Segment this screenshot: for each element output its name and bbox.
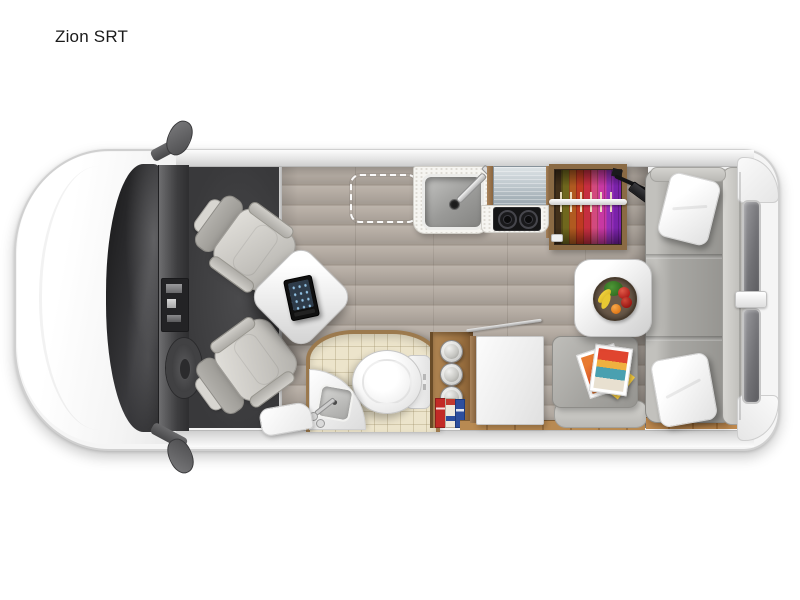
can-1 (440, 340, 463, 363)
refrigerator (493, 166, 548, 209)
steering-hub (179, 358, 191, 380)
storage-cabinet (476, 336, 544, 425)
rear-window-top (742, 200, 761, 296)
toilet-seat-ring (362, 359, 412, 405)
center-console (161, 278, 189, 332)
tablet-screen (288, 279, 314, 311)
sofa-seam-2 (646, 336, 724, 341)
rear-door-divider (735, 291, 767, 308)
top-wall (176, 150, 754, 167)
cooktop (493, 207, 541, 231)
pantry-shelf (430, 332, 473, 428)
fruit-apple-2 (621, 297, 632, 308)
pillow-bottom (650, 351, 719, 428)
can-2 (440, 363, 463, 386)
wardrobe-latch (551, 234, 563, 242)
burner-right (519, 210, 538, 229)
rear-window-bottom (742, 308, 761, 404)
van-floorplan (0, 0, 800, 600)
fruit-bowl (593, 277, 637, 321)
bath-knob-2 (316, 419, 325, 428)
magazine-front (589, 344, 633, 397)
hanger-rail (549, 199, 627, 205)
bath-basin (315, 383, 354, 422)
burner-left (498, 210, 517, 229)
magazines (580, 344, 634, 398)
optional-feature-outline (350, 174, 418, 223)
sofa-seam-1 (646, 254, 724, 259)
toilet-bowl (352, 350, 422, 414)
fruit-orange (611, 304, 621, 314)
